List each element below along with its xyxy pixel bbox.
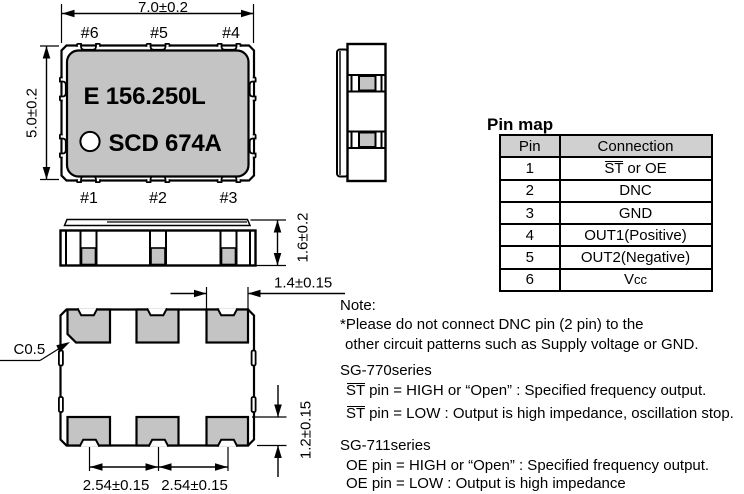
svg-text:E 156.250L: E 156.250L	[84, 83, 206, 110]
svg-text:1.4±0.15: 1.4±0.15	[274, 275, 332, 292]
svg-text:#5: #5	[150, 25, 168, 42]
svg-text:C0.5: C0.5	[14, 341, 46, 358]
svg-text:1.6±0.2: 1.6±0.2	[295, 213, 312, 263]
svg-text:#3: #3	[220, 190, 238, 207]
svg-text:2.54±0.15: 2.54±0.15	[83, 477, 150, 494]
svg-text:#2: #2	[149, 190, 167, 207]
svg-text:#6: #6	[81, 25, 99, 42]
svg-text:SCD 674A: SCD 674A	[109, 130, 222, 157]
svg-text:#4: #4	[222, 25, 240, 42]
svg-text:2.54±0.15: 2.54±0.15	[161, 477, 228, 494]
svg-text:#1: #1	[80, 190, 98, 207]
svg-text:5.0±0.2: 5.0±0.2	[24, 88, 41, 138]
svg-text:1.2±0.15: 1.2±0.15	[298, 401, 315, 459]
svg-text:7.0±0.2: 7.0±0.2	[138, 0, 188, 16]
